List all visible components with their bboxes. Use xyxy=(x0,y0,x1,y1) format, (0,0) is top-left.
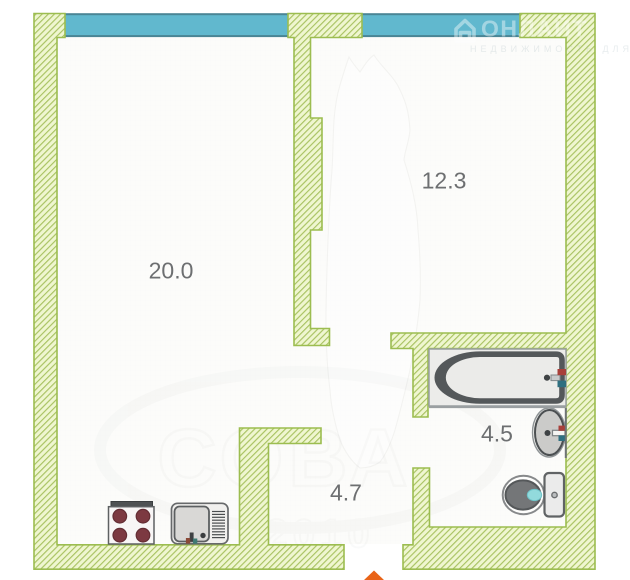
svg-text:12.3: 12.3 xyxy=(422,168,467,194)
svg-text:СОВА: СОВА xyxy=(157,413,412,504)
svg-text:ОНЛАЙТ: ОНЛАЙТ xyxy=(481,15,588,42)
svg-text:20.0: 20.0 xyxy=(149,258,194,284)
svg-text:4.7: 4.7 xyxy=(330,480,362,506)
svg-text:НЕДВИЖИМОСТЬ ДЛЯ ВАС: НЕДВИЖИМОСТЬ ДЛЯ ВАС xyxy=(470,44,630,54)
svg-text:4.5: 4.5 xyxy=(481,421,513,447)
